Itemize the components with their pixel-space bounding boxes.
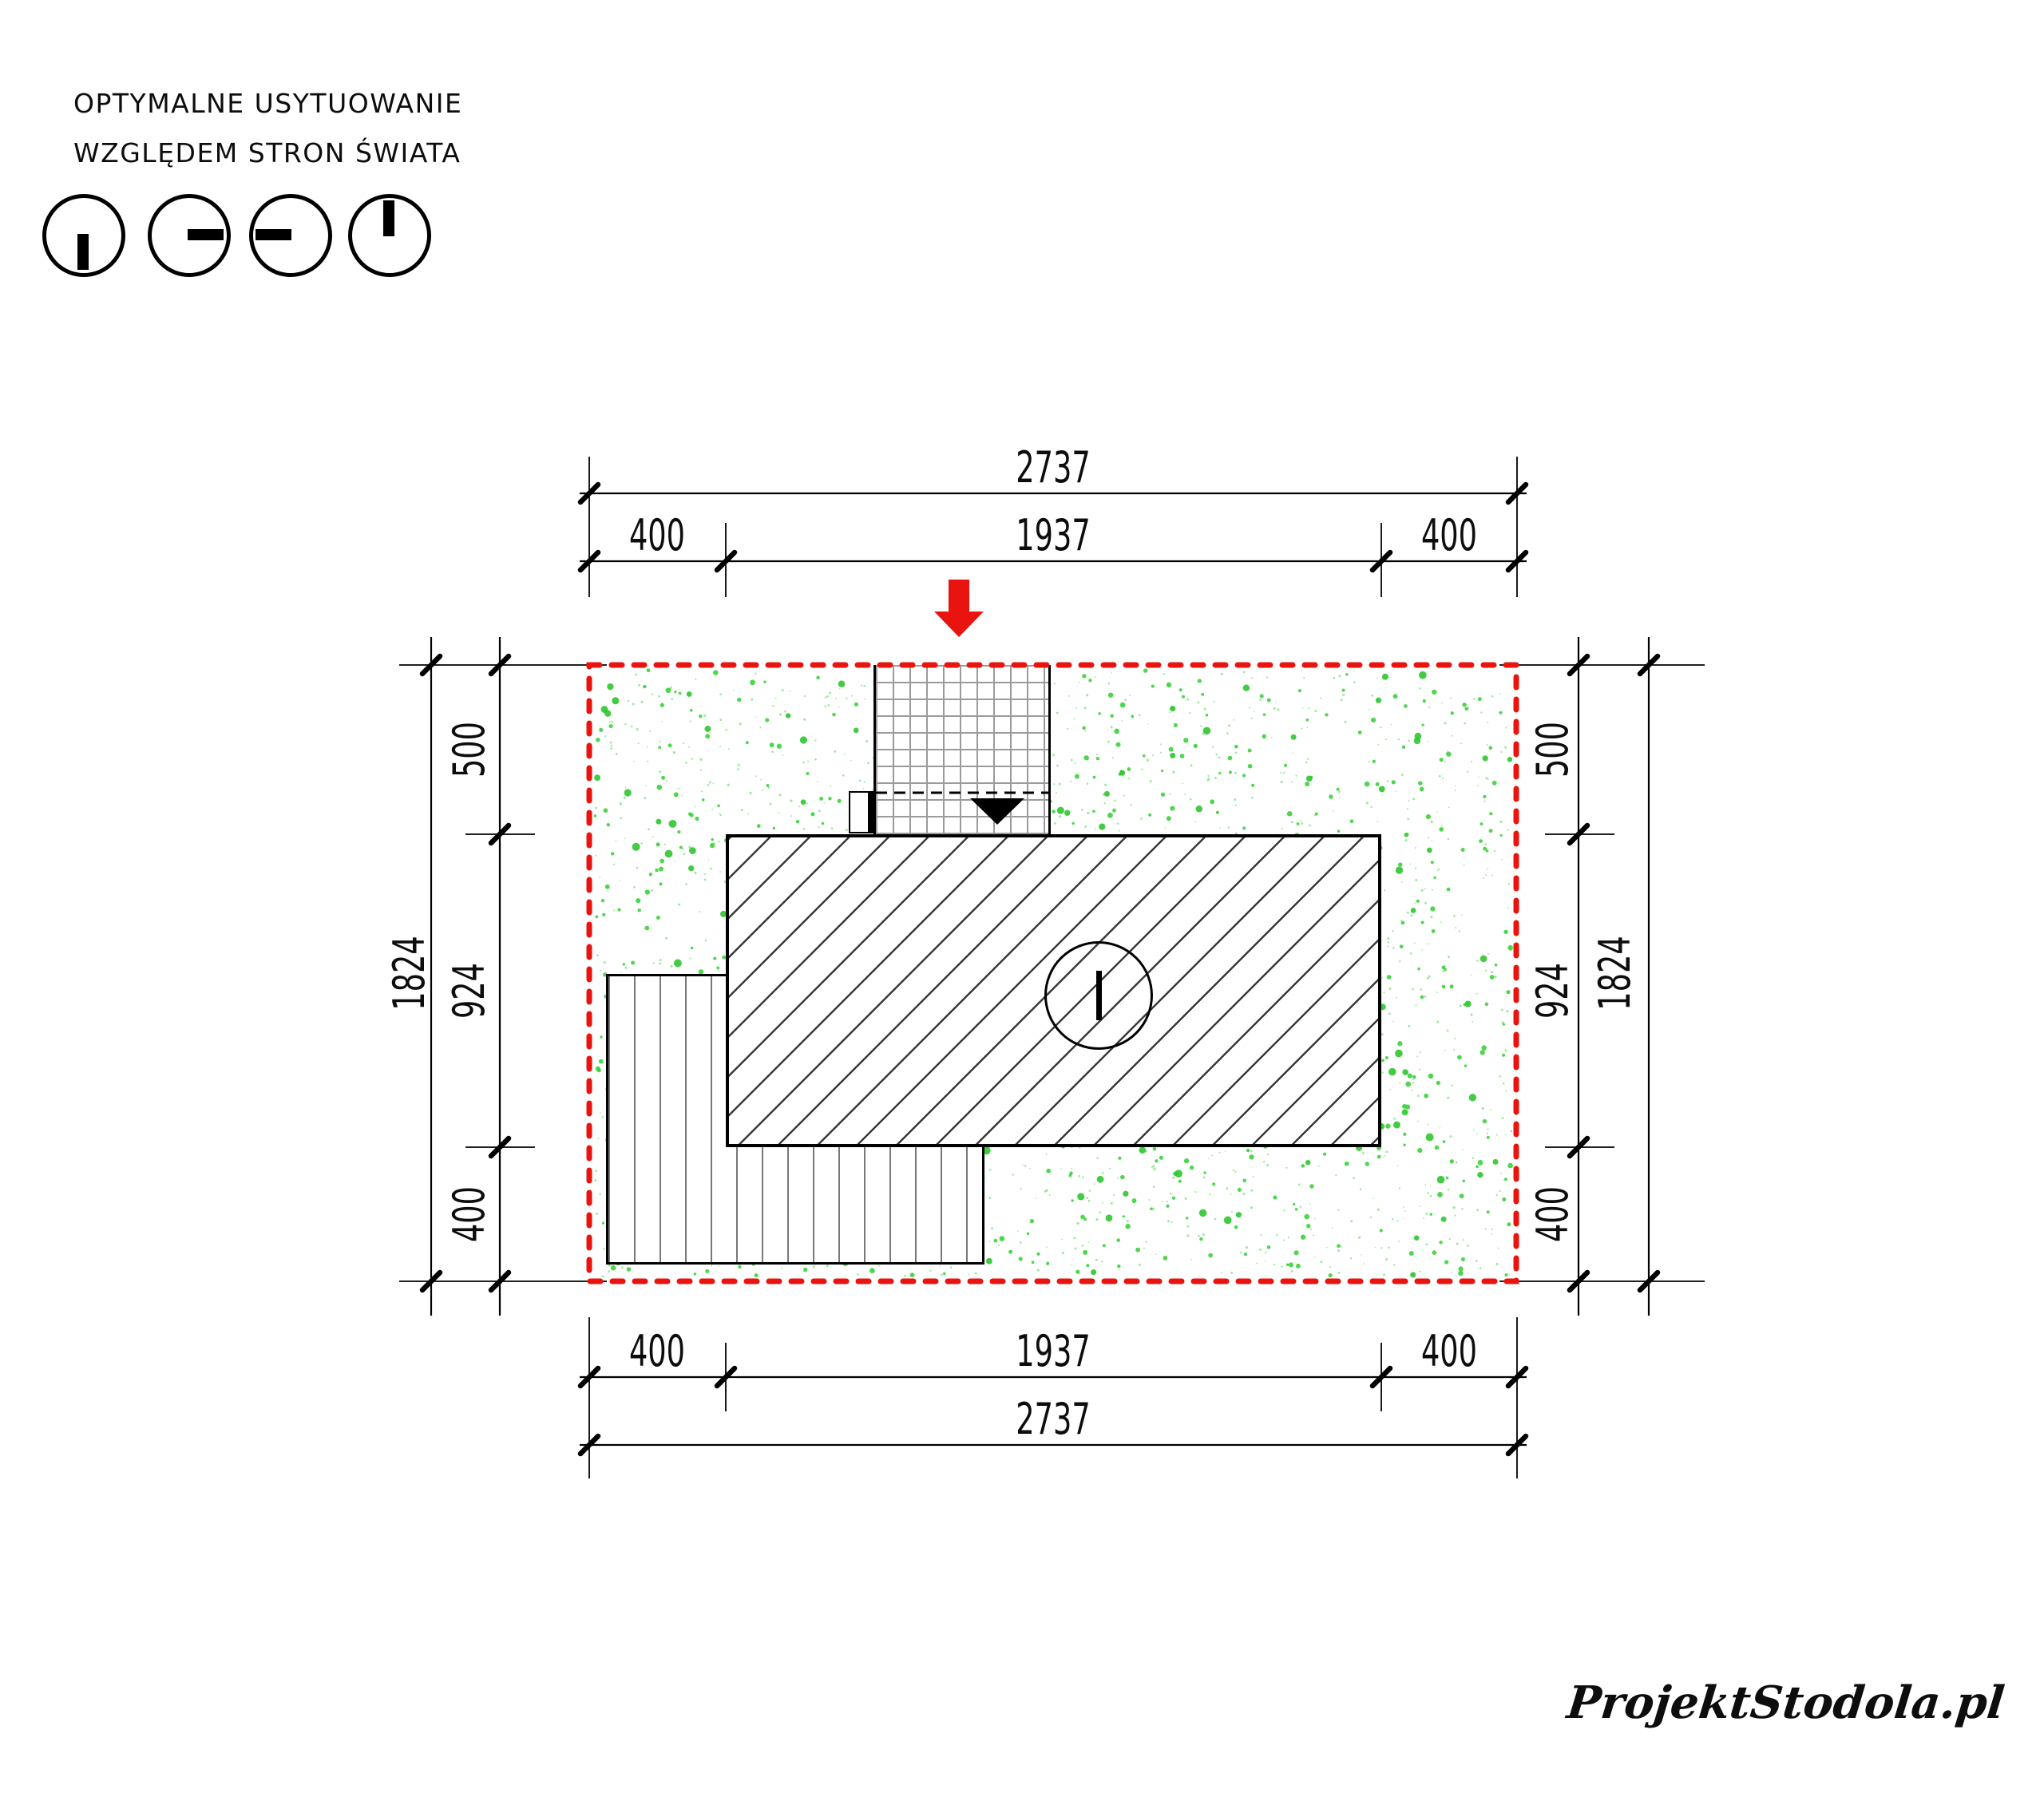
- south-pointer: [77, 234, 89, 270]
- dim-bottom-building: 1937: [1012, 1332, 1094, 1371]
- dimension-tick: [1570, 656, 1587, 674]
- dimension-tick: [1570, 1273, 1587, 1290]
- orientation-east-icon: [148, 194, 231, 277]
- dimension-tick: [1373, 1368, 1390, 1386]
- driveway-paving: [873, 665, 1051, 834]
- dimension-tick: [422, 1273, 440, 1290]
- dim-right-bottom-margin: 400: [1533, 1174, 1573, 1255]
- entrance-arrow-icon: [934, 580, 984, 637]
- dimension-tick: [491, 1138, 509, 1156]
- dimension-tick: [1373, 552, 1390, 570]
- dimension-tick: [580, 485, 598, 502]
- dim-top-right-margin: 400: [1408, 516, 1490, 556]
- orientation-north-icon: [348, 194, 431, 277]
- dimension-tick: [1570, 1138, 1587, 1156]
- dim-left-overall: 1824: [390, 932, 430, 1014]
- dimension-tick: [1570, 825, 1587, 843]
- dimension-tick: [422, 656, 440, 674]
- dim-bottom-overall: 2737: [1012, 1399, 1094, 1439]
- watermark-logo: ProjektStodola.pl: [1564, 1676, 2006, 1729]
- east-pointer: [188, 229, 224, 240]
- dimension-tick: [1508, 1368, 1526, 1386]
- dimension-tick: [580, 552, 598, 570]
- dimension-tick: [491, 656, 509, 674]
- dim-left-top-margin: 500: [450, 709, 489, 790]
- dim-left-building: 924: [450, 950, 489, 1031]
- dimension-tick: [1508, 552, 1526, 570]
- drawing-title-line1: OPTYMALNE USYTUOWANIE: [73, 88, 462, 119]
- dim-bottom-left-margin: 400: [616, 1332, 698, 1371]
- dim-top-overall: 2737: [1012, 448, 1094, 488]
- dimension-tick: [491, 1273, 509, 1290]
- dimension-tick: [717, 552, 735, 570]
- dimension-tick: [1508, 1436, 1526, 1454]
- dim-top-building: 1937: [1012, 516, 1094, 556]
- dimension-tick: [580, 1368, 598, 1386]
- dim-left-bottom-margin: 400: [450, 1174, 489, 1255]
- west-pointer: [255, 229, 291, 240]
- dimension-tick: [491, 825, 509, 843]
- roof-orientation-pointer: [1096, 971, 1102, 1020]
- dimension-tick: [1508, 485, 1526, 502]
- plot-area: [589, 665, 1516, 1281]
- site-plan-drawing: OPTYMALNE USYTUOWANIE WZGLĘDEM STRON ŚWI…: [0, 0, 2044, 1797]
- dimension-tick: [717, 1368, 735, 1386]
- gate-symbol: [849, 791, 875, 833]
- dimension-tick: [1640, 1273, 1658, 1290]
- dim-right-top-margin: 500: [1533, 709, 1573, 790]
- drawing-title-line2: WZGLĘDEM STRON ŚWIATA: [73, 137, 461, 168]
- dim-right-overall: 1824: [1595, 932, 1635, 1014]
- orientation-west-icon: [249, 194, 332, 277]
- dim-right-building: 924: [1533, 950, 1573, 1031]
- dim-bottom-right-margin: 400: [1408, 1332, 1490, 1371]
- dim-top-left-margin: 400: [616, 516, 698, 556]
- north-pointer: [383, 200, 394, 236]
- gate-post: [868, 793, 873, 832]
- dimension-tick: [1640, 656, 1658, 674]
- orientation-south-icon: [42, 194, 125, 277]
- dimension-tick: [580, 1436, 598, 1454]
